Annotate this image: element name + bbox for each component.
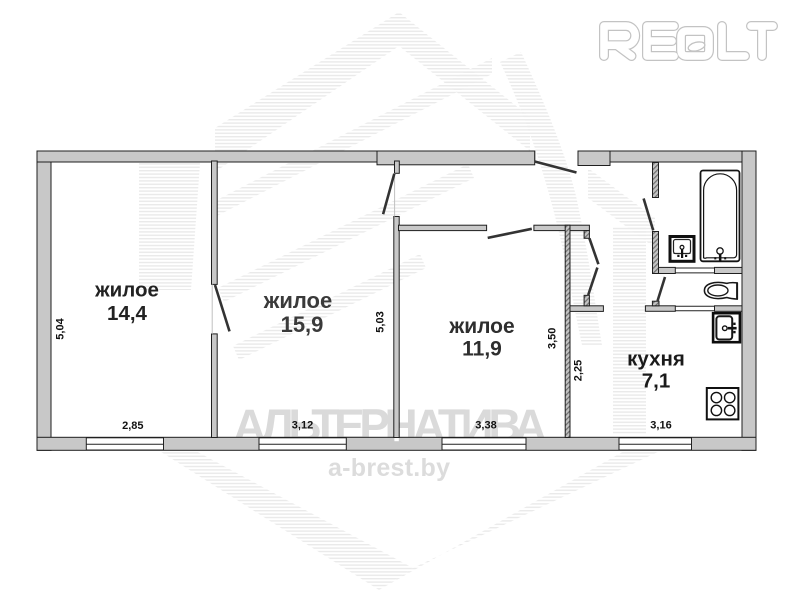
svg-text:2,85: 2,85 (122, 420, 143, 432)
svg-text:3,50: 3,50 (547, 328, 559, 349)
svg-text:7,1: 7,1 (642, 370, 671, 393)
svg-text:3,16: 3,16 (650, 420, 671, 432)
svg-text:a-brest.by: a-brest.by (328, 454, 450, 482)
svg-text:кухня: кухня (627, 348, 685, 371)
svg-text:14,4: 14,4 (107, 302, 147, 325)
svg-text:3,12: 3,12 (292, 420, 313, 432)
svg-text:жилое: жилое (263, 288, 332, 313)
svg-text:2,25: 2,25 (573, 360, 585, 381)
svg-text:5,04: 5,04 (55, 317, 67, 339)
svg-text:15,9: 15,9 (281, 312, 324, 337)
svg-text:жилое: жилое (94, 279, 159, 302)
svg-text:жилое: жилое (448, 315, 514, 338)
svg-text:3,38: 3,38 (475, 420, 496, 432)
svg-text:11,9: 11,9 (462, 338, 502, 361)
svg-text:5,03: 5,03 (375, 311, 387, 332)
